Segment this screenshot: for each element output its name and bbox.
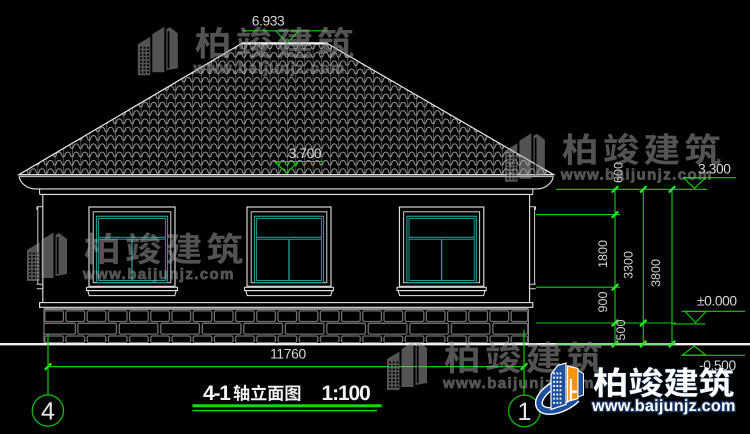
svg-text:11760: 11760 bbox=[270, 347, 306, 362]
svg-text:±0.000: ±0.000 bbox=[697, 294, 737, 309]
svg-text:1800: 1800 bbox=[596, 240, 610, 268]
svg-text:3300: 3300 bbox=[622, 251, 636, 279]
svg-text:4: 4 bbox=[41, 398, 55, 426]
svg-text:3800: 3800 bbox=[649, 259, 663, 287]
svg-text:www.baijunjz.com: www.baijunjz.com bbox=[591, 397, 736, 415]
svg-text:1:100: 1:100 bbox=[322, 382, 371, 405]
svg-text:500: 500 bbox=[614, 320, 628, 341]
svg-text:3.700: 3.700 bbox=[289, 146, 322, 161]
svg-text:900: 900 bbox=[596, 292, 610, 313]
svg-text:1: 1 bbox=[517, 398, 531, 426]
svg-text:www.baijunjz.com: www.baijunjz.com bbox=[82, 266, 235, 283]
svg-text:4-1: 4-1 bbox=[203, 382, 231, 405]
svg-text:www.baijunjz.com: www.baijunjz.com bbox=[193, 60, 346, 77]
svg-text:www.baijunjz.com: www.baijunjz.com bbox=[560, 167, 713, 184]
svg-text:6.933: 6.933 bbox=[252, 13, 285, 28]
